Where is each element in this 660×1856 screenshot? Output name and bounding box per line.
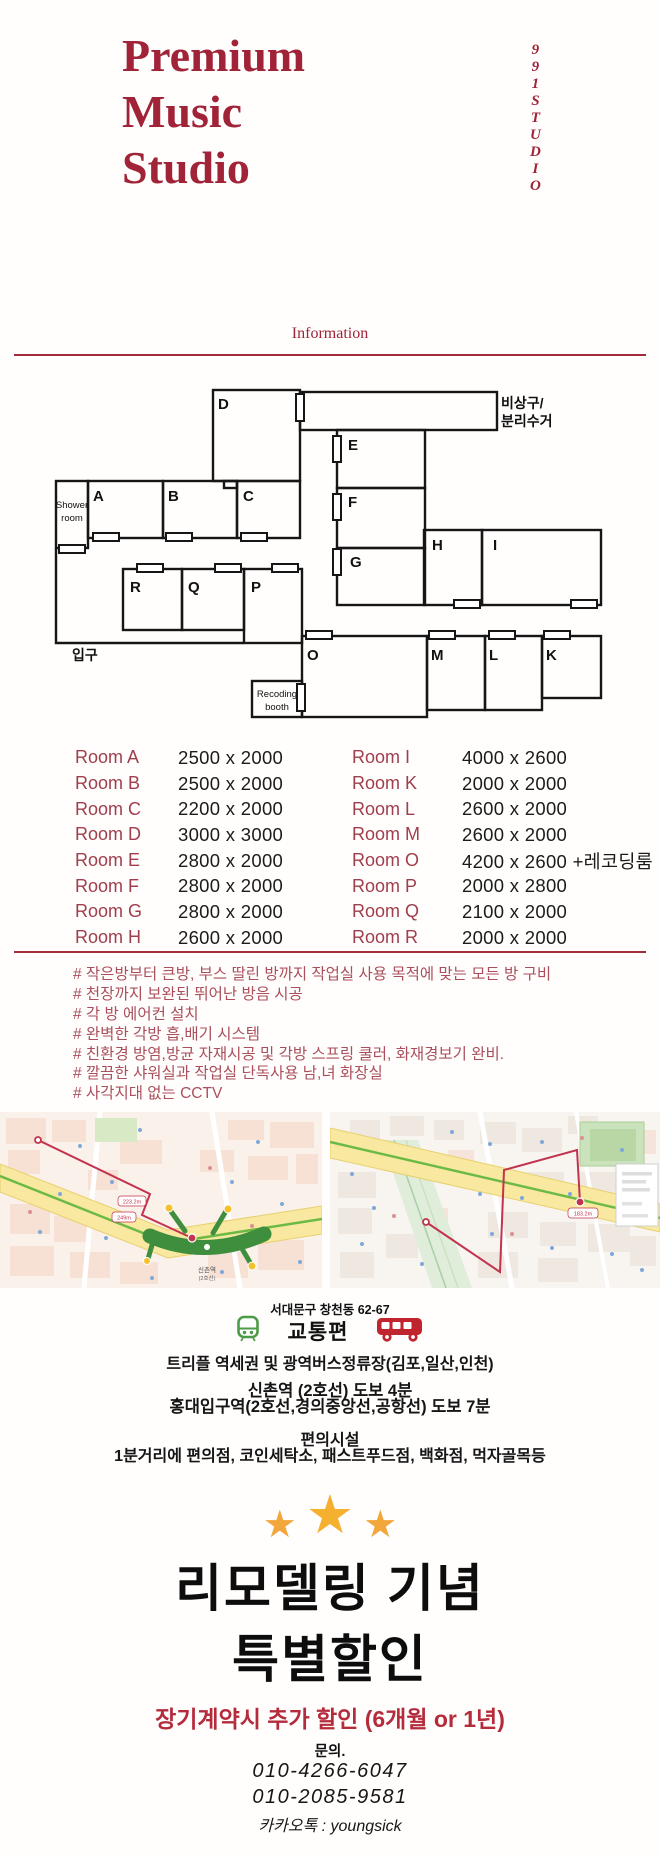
room-name: Room E [75,850,178,871]
entrance-label: 입구 [72,647,98,663]
room-name: Room P [352,876,462,897]
section-title-information: Information [0,325,660,343]
transit-line-stations: 트리플 역세권 및 광역버스정류장(김포,일산,인천) [0,1350,660,1374]
rect [338,1172,376,1198]
room-G-label: G [350,554,362,571]
divider-bottom [14,951,646,953]
title-line-1: Premium [122,28,305,84]
table-row: Room G2800 x 2000 [75,899,283,925]
table-row: Room Q2100 x 2000 [352,899,653,925]
room-K-label: K [546,647,557,664]
circle [576,1198,584,1206]
feature-item: # 각 방 에어컨 설치 [73,1002,551,1022]
map-image-left: 신촌역(2호선)223.2m249m [0,1112,322,1288]
circle [610,1252,614,1256]
rect [270,1122,314,1148]
flyer-page: Premium Music Studio 991STUDIO Informati… [0,0,660,1856]
circle [224,1205,232,1213]
room-size: 2600 x 2000 [462,798,567,820]
circle [58,1192,62,1196]
discount-line: 장기계약시 추가 할인 (6개월 or 1년) [0,1700,660,1734]
room-size: 2100 x 2000 [462,901,567,923]
room-P-label: P [251,579,261,596]
room-name: Room G [75,901,178,922]
room-C-label: C [243,488,254,505]
circle [230,1180,234,1184]
room-B-label: B [168,488,179,505]
room-K [542,636,601,698]
room-size: 2500 x 2000 [178,773,283,795]
room-size: 2800 x 2000 [178,850,283,872]
circle [104,1236,108,1240]
room-size: 2000 x 2800 [462,875,567,897]
rect [52,1120,86,1142]
vertical-brand-991studio: 991STUDIO [530,42,541,195]
door [93,533,119,541]
table-row: Room B2500 x 2000 [75,771,283,797]
floor-plan-diagram: DABCEFGHIRQPOMLKShowerroomRecodingbooth입… [0,380,660,730]
rect [434,1120,464,1140]
room-size: 4000 x 2600 [462,747,567,769]
map-image-right: 183.2m [330,1112,660,1288]
feature-item: # 깔끔한 샤워실과 작업실 단독사용 남,녀 화장실 [73,1061,551,1081]
rect [70,1252,110,1278]
text: 223.2m [123,1200,142,1206]
room-table-left: Room A2500 x 2000Room B2500 x 2000Room C… [75,745,283,951]
room-size: 2600 x 2000 [462,824,567,846]
circle [144,1258,151,1265]
circle [568,1192,572,1196]
feature-list: # 작은방부터 큰방, 부스 딸린 방까지 작업실 사용 목적에 맞는 모든 방… [73,962,551,1101]
feature-item: # 작은방부터 큰방, 부스 딸린 방까지 작업실 사용 목적에 맞는 모든 방… [73,962,551,982]
door [571,600,597,608]
bus-icon [376,1314,424,1348]
star-icon: ★ [263,1506,297,1544]
text: (2호선) [199,1274,216,1282]
circle [360,1242,364,1246]
door [306,631,332,639]
room-size: 2000 x 2000 [462,927,567,949]
room-size: 2500 x 2000 [178,747,283,769]
circle [204,1244,210,1250]
room-L-label: L [489,647,498,664]
circle [420,1262,424,1266]
room-name: Room R [352,927,462,948]
circle [350,1172,354,1176]
room-H-label: H [432,537,443,554]
circle [165,1204,173,1212]
door [333,549,341,575]
room-size: 3000 x 3000 [178,824,283,846]
table-row: Room A2500 x 2000 [75,745,283,771]
facilities-line: 1분거리에 편의점, 코인세탁소, 패스트푸드점, 백화점, 먹자골목등 [0,1442,660,1466]
room-name: Room O [352,850,462,871]
brand-letter: 9 [532,42,540,59]
circle [580,1136,584,1140]
door [137,564,163,572]
rect [95,1118,137,1142]
table-row: Room H2600 x 2000 [75,925,283,951]
divider-top [14,354,646,356]
circle [280,1202,284,1206]
rect [588,1224,630,1252]
rect [120,1140,162,1164]
table-row: Room M2600 x 2000 [352,822,653,848]
rect [590,1129,636,1161]
door [333,436,341,462]
circle [640,1268,644,1272]
circle [188,1234,196,1242]
brand-letter: O [530,178,541,195]
rect [258,1240,304,1270]
rect [540,1222,576,1246]
circle [490,1232,494,1236]
circle [248,1262,256,1270]
table-row: Room I4000 x 2600 [352,745,653,771]
room-F-label: F [348,494,357,511]
door [215,564,241,572]
room-R-label: R [130,579,141,596]
studio-title: Premium Music Studio [122,28,305,196]
brand-letter: I [533,161,539,178]
title-line-3: Studio [122,140,305,196]
circle [478,1192,482,1196]
room-name: Room L [352,799,462,820]
table-row: Room D3000 x 3000 [75,822,283,848]
circle [208,1166,212,1170]
circle [510,1232,514,1236]
room-name: Room C [75,799,178,820]
room-size: 2800 x 2000 [178,875,283,897]
rect [622,1214,648,1218]
circle [540,1140,544,1144]
room-I-label: I [493,537,497,554]
brand-letter: 1 [532,76,540,93]
circle [520,1196,524,1200]
room-size: 2800 x 2000 [178,901,283,923]
table-row: Room P2000 x 2800 [352,873,653,899]
circle [220,1270,224,1274]
table-row: Room L2600 x 2000 [352,796,653,822]
room-O-label: O [307,647,319,664]
circle [38,1230,42,1234]
circle [110,1180,114,1184]
circle [35,1137,41,1143]
rect [538,1258,578,1282]
room-size: 2000 x 2000 [462,773,567,795]
feature-item: # 완벽한 각방 흡,배기 시스템 [73,1022,551,1042]
room-size: 2200 x 2000 [178,798,283,820]
circle [298,1260,302,1264]
room-name: Room H [75,927,178,948]
door [333,494,341,520]
exit-label-line2: 분리수거 [501,413,553,429]
circle [138,1128,142,1132]
booth-label-line1: Recoding [257,689,297,700]
table-row: Room E2800 x 2000 [75,848,283,874]
brand-letter: U [530,127,541,144]
room-E-label: E [348,437,358,454]
exit-label-line1: 비상구/ [501,395,544,411]
kakao-id: 카카오톡 : youngsick [0,1812,660,1836]
room-name: Room M [352,824,462,845]
rect [488,1212,528,1238]
promo-title-line2: 특별할인 [0,1618,660,1692]
rect [120,1262,158,1284]
table-row: Room F2800 x 2000 [75,873,283,899]
door [241,533,267,541]
brand-letter: 9 [532,59,540,76]
circle [372,1206,376,1210]
rect [622,1202,642,1206]
promo-title-line1: 리모델링 기념 [0,1547,660,1621]
door [544,631,570,639]
circle [620,1148,624,1152]
room-O [302,636,427,717]
text: 신촌역 [198,1265,216,1274]
circle [392,1214,396,1218]
feature-item: # 사각지대 없는 CCTV [73,1081,551,1101]
circle [550,1246,554,1250]
rect [630,1236,656,1266]
door [429,631,455,639]
room-name: Room B [75,773,178,794]
door [272,564,298,572]
contact-label: 문의. [0,1740,660,1761]
table-row: Room K2000 x 2000 [352,771,653,797]
room-I [482,530,601,605]
circle [256,1140,260,1144]
circle [28,1210,32,1214]
entrance-wall [56,548,244,643]
room-M-label: M [431,647,444,664]
circle [488,1142,492,1146]
room-name: Room Q [352,901,462,922]
rect [228,1120,264,1140]
title-line-2: Music [122,84,305,140]
rect [390,1116,424,1136]
circle [150,1276,154,1280]
star-row: ★ ★ ★ [0,1488,660,1544]
door [297,684,305,711]
room-name: Room F [75,876,178,897]
circle [78,1144,82,1148]
text: 249m [117,1216,131,1222]
room-D-label: D [218,396,229,413]
shower-label-line2: room [61,513,83,524]
brand-letter: S [531,93,539,110]
subway-icon [236,1315,260,1347]
notch-BC [224,481,237,488]
rect [248,1156,288,1180]
rect [296,1154,318,1184]
star-icon: ★ [306,1488,354,1542]
room-size: 2600 x 2000 [178,927,283,949]
room-table-right: Room I4000 x 2600Room K2000 x 2000Room L… [352,745,653,951]
rect [622,1180,646,1184]
room-name: Room A [75,747,178,768]
rect [622,1172,652,1176]
door [166,533,192,541]
transport-heading: 교통편 [0,1314,660,1348]
rect [340,1252,374,1278]
shower-label-line1: Shower [56,500,88,511]
room-name: Room I [352,747,462,768]
circle [450,1130,454,1134]
circle [423,1219,429,1225]
table-row: Room O4200 x 2600 +레코딩룸 [352,848,653,874]
room-name: Room K [352,773,462,794]
text: 183.2m [574,1212,593,1218]
room-size: 4200 x 2600 +레코딩룸 [462,848,653,874]
transit-line-hongdae: 홍대입구역(2호선,경의중앙선,공항선) 도보 7분 [0,1393,660,1417]
rect [338,1208,372,1234]
brand-letter: T [531,110,540,127]
booth-label-line2: booth [265,702,289,713]
phone-number-1: 010-4266-6047 [0,1760,660,1783]
feature-item: # 천장까지 보완된 뛰어난 방음 시공 [73,982,551,1002]
star-icon: ★ [363,1506,397,1544]
table-row: Room R2000 x 2000 [352,925,653,951]
door [489,631,515,639]
room-name: Room D [75,824,178,845]
rect [386,1234,418,1258]
feature-item: # 친환경 방염,방균 자재시공 및 각방 스프링 쿨러, 화재경보기 완비. [73,1042,551,1062]
brand-letter: D [530,144,541,161]
door [59,545,85,553]
phone-number-2: 010-2085-9581 [0,1786,660,1809]
door [296,394,304,421]
room-A-label: A [93,488,104,505]
corridor [300,392,497,430]
door [454,600,480,608]
circle [250,1224,254,1228]
rect [622,1188,650,1192]
room-Q-label: Q [188,579,200,596]
rect [10,1246,54,1276]
rect [208,1252,248,1278]
table-row: Room C2200 x 2000 [75,796,283,822]
transport-title: 교통편 [288,1316,349,1346]
